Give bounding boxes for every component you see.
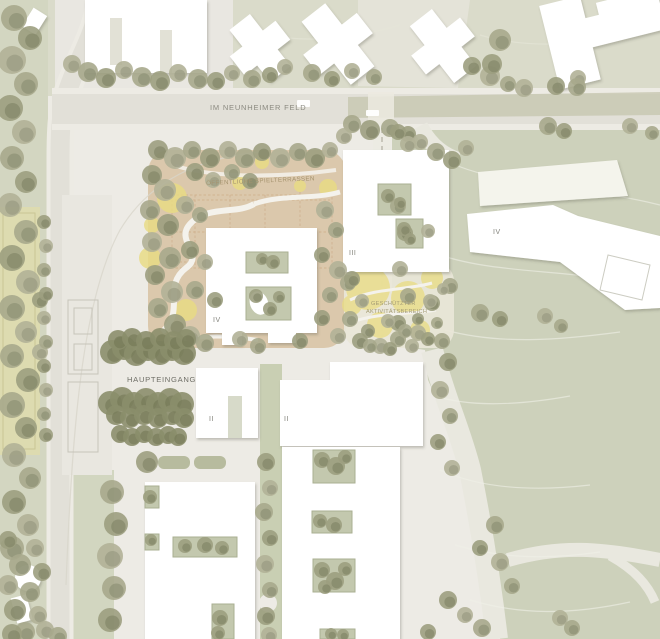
tree-icon — [463, 57, 481, 75]
building-iv-stub-2 — [268, 333, 296, 343]
tree-icon — [9, 554, 31, 576]
tree-icon — [355, 294, 369, 308]
tree-icon — [2, 490, 26, 514]
tree-icon — [0, 146, 24, 170]
tree-icon — [142, 232, 162, 252]
tree-icon — [26, 539, 44, 557]
tree-icon — [14, 72, 38, 96]
tree-icon — [344, 63, 360, 79]
tree-icon — [322, 287, 338, 303]
tree-icon — [442, 408, 458, 424]
tree-icon — [243, 70, 261, 88]
ii-left-green-strip — [228, 396, 242, 438]
tree-icon — [257, 607, 275, 625]
tree-icon — [328, 222, 344, 238]
building-south-slab-left — [145, 482, 255, 639]
tree-icon — [500, 76, 516, 92]
tree-icon — [1, 5, 27, 31]
tree-icon — [431, 381, 449, 399]
tree-icon — [186, 281, 204, 299]
tree-icon — [196, 334, 214, 352]
tree-icon — [314, 310, 330, 326]
tree-icon — [360, 120, 380, 140]
tree-icon — [143, 490, 157, 504]
tree-icon — [39, 428, 53, 442]
tree-icon — [292, 333, 308, 349]
tree-icon — [188, 69, 208, 89]
tree-icon — [197, 537, 213, 553]
tree-icon — [150, 71, 170, 91]
tree-icon — [0, 344, 24, 368]
tree-icon — [322, 142, 338, 158]
tree-icon — [15, 171, 37, 193]
tree-icon — [305, 148, 325, 168]
protected-activity-label-line2: AKTIVITÄTSBEREICH — [366, 309, 427, 315]
tree-icon — [169, 428, 187, 446]
tree-icon — [421, 224, 435, 238]
tree-icon — [256, 555, 274, 573]
tree-icon — [314, 562, 330, 578]
tree-icon — [200, 148, 220, 168]
tree-icon — [176, 329, 196, 349]
tree-icon — [39, 239, 53, 253]
storey-label-ii-right: II — [284, 416, 289, 423]
tree-icon — [568, 78, 586, 96]
tree-icon — [159, 247, 181, 269]
tree-icon — [257, 453, 275, 471]
tree-icon — [381, 189, 395, 203]
vehicle-2 — [366, 110, 379, 116]
tree-icon — [439, 353, 457, 371]
tree-icon — [140, 200, 160, 220]
tree-icon — [338, 450, 352, 464]
tree-icon — [361, 324, 375, 338]
tree-icon — [439, 591, 457, 609]
tree-icon — [154, 179, 176, 201]
tree-icon — [37, 215, 51, 229]
tree-icon — [39, 335, 53, 349]
tree-icon — [277, 59, 293, 75]
tree-icon — [472, 540, 488, 556]
tree-icon — [262, 67, 278, 83]
tree-icon — [37, 263, 51, 277]
tree-icon — [303, 64, 321, 82]
tree-icon — [423, 294, 437, 308]
tree-icon — [0, 392, 25, 418]
tree-icon — [97, 543, 123, 569]
tree-icon — [232, 331, 248, 347]
tree-icon — [33, 563, 51, 581]
tree-icon — [443, 151, 461, 169]
tree-icon — [430, 434, 446, 450]
tree-icon — [313, 514, 327, 528]
tree-icon — [253, 143, 271, 161]
tree-icon — [16, 270, 40, 294]
h-slot-2 — [160, 30, 172, 73]
tree-icon — [366, 69, 382, 85]
building-ii-left — [196, 368, 258, 438]
tree-icon — [100, 480, 124, 504]
storey-label-ii-left: II — [209, 416, 214, 423]
tree-icon — [326, 517, 342, 533]
tree-icon — [178, 539, 192, 553]
tree-icon — [224, 65, 240, 81]
tree-icon — [37, 407, 51, 421]
protected-activity-label-line1: GESCHÜTZTER — [371, 301, 416, 307]
tree-icon — [2, 443, 26, 467]
tree-icon — [96, 68, 116, 88]
tree-icon — [145, 265, 165, 285]
tree-icon — [324, 71, 340, 87]
tree-icon — [622, 118, 638, 134]
tree-icon — [314, 247, 330, 263]
tree-icon — [434, 333, 450, 349]
tree-icon — [249, 289, 263, 303]
tree-icon — [212, 610, 228, 626]
tree-icon — [104, 512, 128, 536]
tree-icon — [539, 117, 557, 135]
tree-icon — [98, 608, 122, 632]
tree-icon — [504, 578, 520, 594]
tree-icon — [489, 29, 511, 51]
tree-icon — [102, 576, 126, 600]
tree-icon — [215, 541, 229, 555]
tree-icon — [344, 271, 360, 287]
tree-icon — [394, 197, 406, 209]
tree-icon — [437, 283, 449, 295]
tree-icon — [645, 126, 659, 140]
storey-label-iii: III — [349, 250, 356, 257]
site-plan-svg — [0, 0, 660, 639]
tree-icon — [157, 214, 179, 236]
tree-icon — [405, 339, 419, 353]
tree-icon — [431, 317, 443, 329]
tree-icon — [537, 308, 553, 324]
tree-icon — [262, 530, 278, 546]
tree-icon — [392, 261, 408, 277]
tree-icon — [458, 140, 474, 156]
tree-icon — [207, 72, 225, 90]
tree-icon — [20, 582, 40, 602]
tree-icon — [342, 311, 358, 327]
tree-icon — [181, 241, 199, 259]
tree-icon — [145, 534, 157, 546]
tree-icon — [289, 143, 307, 161]
tree-icon — [192, 207, 208, 223]
tree-icon — [444, 460, 460, 476]
tree-icon — [400, 136, 416, 152]
tree-icon — [486, 516, 504, 534]
tree-icon — [336, 128, 352, 144]
tree-icon — [176, 196, 194, 214]
tree-icon — [273, 291, 285, 303]
tree-icon — [554, 319, 568, 333]
tree-icon — [39, 287, 53, 301]
tree-icon — [169, 64, 187, 82]
tree-icon — [174, 408, 194, 428]
tree-icon — [164, 147, 186, 169]
tree-icon — [4, 599, 26, 621]
tree-icon — [219, 141, 237, 159]
tree-icon — [316, 201, 334, 219]
h-slot-1 — [110, 18, 122, 65]
tree-icon — [381, 314, 395, 328]
tree-icon — [398, 324, 412, 338]
tree-icon — [183, 141, 201, 159]
tree-icon — [330, 328, 346, 344]
tree-icon — [404, 233, 416, 245]
tree-icon — [186, 163, 204, 181]
tree-icon — [266, 255, 280, 269]
tree-icon — [148, 298, 168, 318]
tree-icon — [136, 451, 158, 473]
building-north-h — [85, 0, 207, 73]
tree-icon — [37, 359, 51, 373]
tree-icon — [16, 368, 40, 392]
tree-icon — [14, 220, 38, 244]
tree-icon — [427, 143, 445, 161]
storey-label-iv-center: IV — [213, 317, 221, 324]
tree-icon — [338, 562, 352, 576]
tree-icon — [12, 120, 36, 144]
street-name-label: IM NEUNHEIMER FELD — [210, 103, 307, 112]
tree-icon — [515, 79, 533, 97]
tree-icon — [161, 281, 183, 303]
tree-icon — [262, 582, 278, 598]
tree-icon — [197, 254, 213, 270]
tree-icon — [255, 503, 273, 521]
tree-icon — [473, 619, 491, 637]
tree-icon — [457, 607, 473, 623]
tree-icon — [15, 321, 37, 343]
tree-icon — [363, 339, 377, 353]
main-entrance-label: HAUPTEINGANG — [127, 375, 196, 384]
storey-label-iv-east: IV — [493, 229, 501, 236]
tree-icon — [556, 123, 572, 139]
tree-icon — [547, 77, 565, 95]
site-plan-canvas: IM NEUNHEIMER FELD ÖFFENTLICHE SPIELTERR… — [0, 0, 660, 639]
tree-icon — [207, 292, 223, 308]
tree-icon — [482, 54, 502, 74]
tree-icon — [491, 553, 509, 571]
tree-icon — [421, 332, 435, 346]
tree-icon — [235, 148, 255, 168]
tree-icon — [78, 62, 98, 82]
tree-icon — [0, 295, 25, 321]
tree-icon — [37, 311, 51, 325]
tree-icon — [263, 302, 277, 316]
tree-icon — [39, 383, 53, 397]
tree-icon — [383, 342, 397, 356]
tree-icon — [318, 580, 332, 594]
tree-icon — [18, 26, 42, 50]
tree-icon — [0, 245, 25, 271]
tree-icon — [564, 620, 580, 636]
tree-icon — [250, 338, 266, 354]
tree-icon — [270, 148, 290, 168]
tree-icon — [471, 304, 489, 322]
tree-icon — [19, 467, 41, 489]
tree-icon — [262, 480, 278, 496]
tree-icon — [492, 311, 508, 327]
tree-icon — [132, 67, 152, 87]
tree-icon — [15, 417, 37, 439]
tree-icon — [115, 61, 133, 79]
tree-icon — [17, 514, 39, 536]
